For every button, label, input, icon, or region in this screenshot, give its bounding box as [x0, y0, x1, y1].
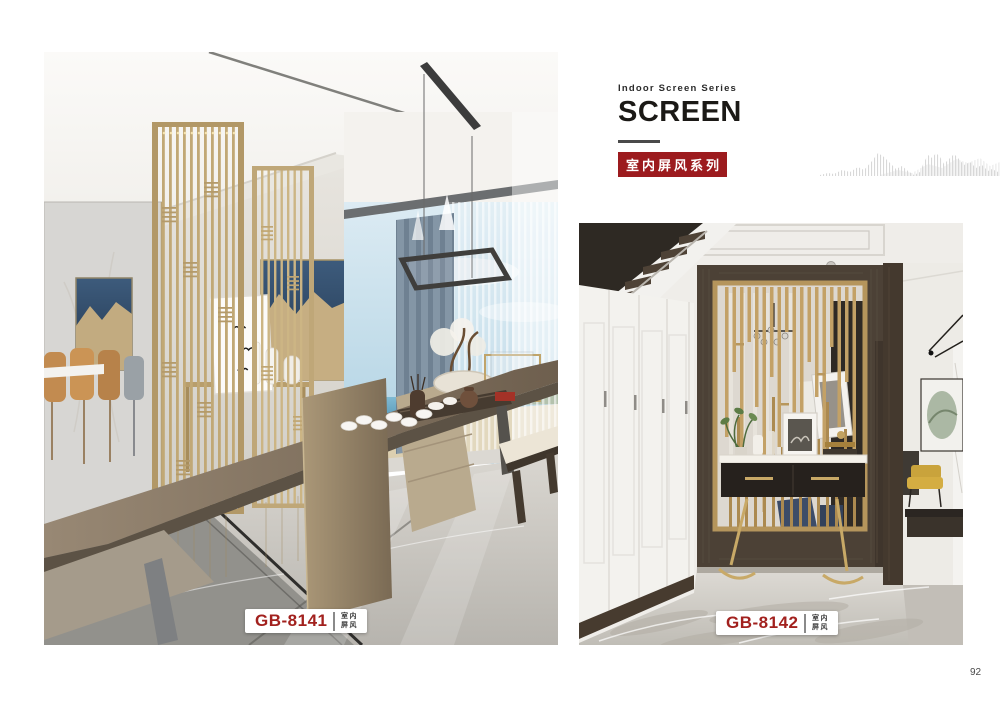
product-category: 室内 屏风: [812, 614, 829, 632]
interior-scene-tea-room: [44, 52, 558, 645]
catalog-page: GB-8141 室内 屏风 Indoor Screen Series SCREE…: [0, 0, 1000, 717]
closet-wall: [579, 285, 694, 639]
product-photo-gb-8142: GB-8142 室内 屏风: [579, 223, 963, 645]
label-divider: [333, 612, 335, 631]
product-label-gb-8142: GB-8142 室内 屏风: [716, 611, 838, 635]
product-code: GB-8142: [726, 613, 798, 633]
interior-scene-hallway: [579, 223, 963, 645]
product-category: 室内 屏风: [341, 612, 358, 630]
label-divider: [804, 614, 806, 633]
wood-column: [883, 263, 903, 585]
series-subtitle-en: Indoor Screen Series: [618, 83, 742, 94]
page-number: 92: [970, 667, 981, 678]
mountain-sketch: [820, 144, 1000, 180]
living-room-right: [883, 263, 963, 585]
wall-art-right: [921, 379, 963, 451]
bronze-runner-panel: [302, 378, 392, 620]
series-title: SCREEN: [618, 97, 742, 127]
product-label-gb-8141: GB-8141 室内 屏风: [245, 609, 367, 633]
header-rule: [618, 140, 660, 143]
product-code: GB-8141: [255, 611, 327, 631]
series-header: Indoor Screen Series SCREEN 室内屏风系列: [618, 83, 742, 177]
sideboard: [905, 509, 963, 537]
series-subtitle-zh: 室内屏风系列: [618, 152, 727, 177]
product-photo-gb-8141: GB-8141 室内 屏风: [44, 52, 558, 645]
